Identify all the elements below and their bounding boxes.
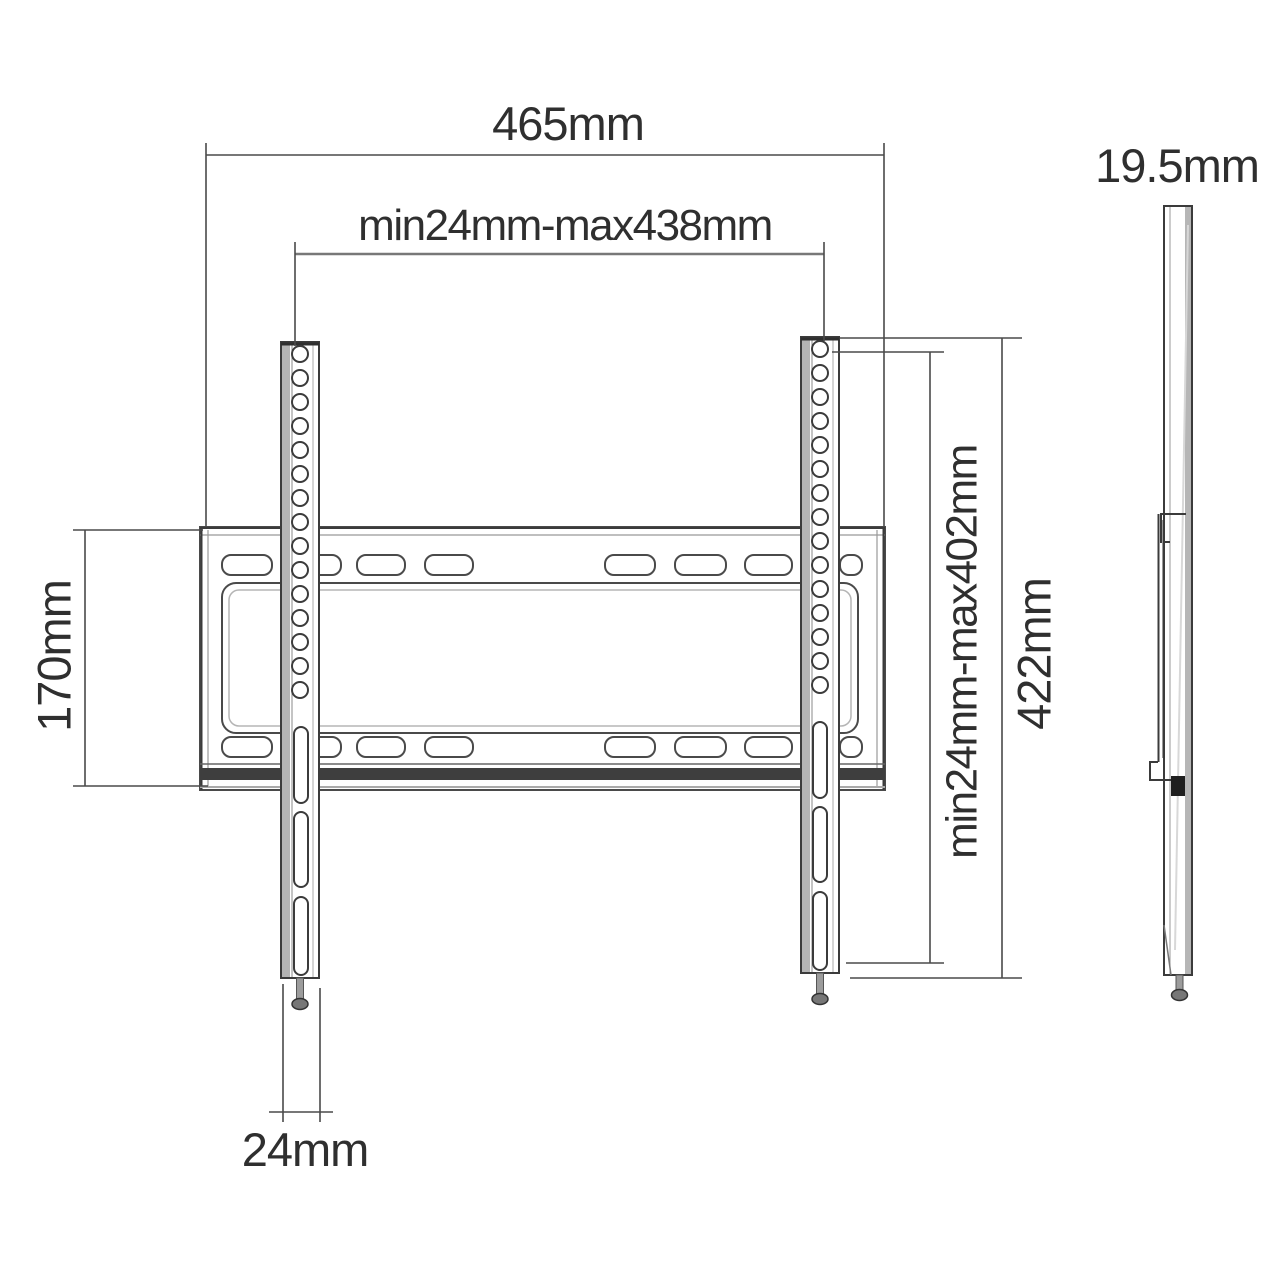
dimension-profile-depth: 19.5mm	[1095, 139, 1259, 192]
label-total-height: 422mm	[1007, 578, 1060, 730]
right-arm-screw	[812, 973, 828, 1005]
right-arm-slot	[813, 807, 827, 882]
left-arm-holes	[292, 346, 308, 698]
left-arm-slot	[294, 812, 308, 887]
label-total-width: 465mm	[492, 97, 644, 150]
drawing-canvas: 465mm min24mm-max438mm 170mm min24mm-max…	[0, 0, 1280, 1280]
dimension-hole-span-width: min24mm-max438mm	[295, 201, 824, 346]
side-view	[1150, 206, 1192, 1001]
right-arm-holes	[812, 341, 828, 693]
left-arm-slot	[294, 727, 308, 803]
left-arm-screw	[292, 978, 308, 1010]
label-hole-span-width: min24mm-max438mm	[358, 201, 772, 250]
right-arm-slot	[813, 892, 827, 970]
label-hole-span-height: min24mm-max402mm	[937, 445, 986, 859]
dimension-arm-width: 24mm	[242, 984, 369, 1176]
side-lock-tab	[1171, 776, 1185, 796]
side-profile-screw	[1172, 975, 1188, 1001]
right-arm	[801, 337, 839, 1005]
dimension-plate-height: 170mm	[27, 530, 208, 786]
left-arm	[281, 342, 319, 1010]
front-view	[200, 337, 885, 1010]
left-arm-slot	[294, 897, 308, 975]
label-arm-width: 24mm	[242, 1123, 369, 1176]
label-plate-height: 170mm	[27, 580, 80, 732]
right-arm-slot	[813, 722, 827, 798]
tv-mount-dimension-drawing: 465mm min24mm-max438mm 170mm min24mm-max…	[0, 0, 1280, 1280]
label-profile-depth: 19.5mm	[1095, 139, 1259, 192]
